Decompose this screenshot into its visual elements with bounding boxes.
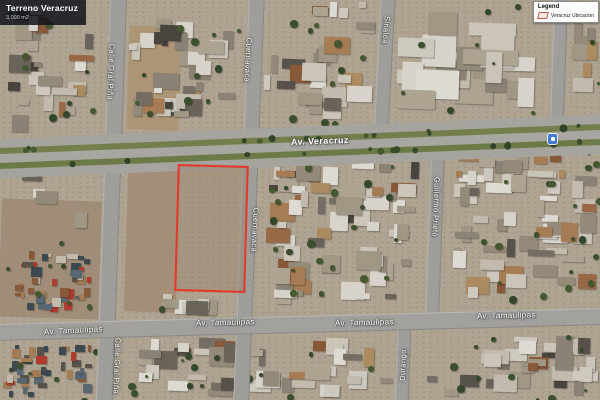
tree (495, 243, 502, 250)
building (484, 353, 501, 366)
building (38, 383, 47, 389)
building (87, 277, 92, 283)
tree (214, 355, 220, 361)
building (313, 6, 328, 15)
tree (593, 161, 600, 168)
building (506, 274, 526, 289)
tree (534, 232, 539, 237)
tree (185, 353, 192, 360)
tree (540, 293, 547, 300)
median-tree (302, 151, 307, 156)
building (31, 267, 42, 277)
tree (273, 247, 278, 252)
building (470, 188, 479, 197)
building (61, 362, 65, 371)
median-tree (364, 134, 369, 139)
building (265, 228, 289, 244)
building (587, 28, 595, 40)
building (583, 63, 591, 77)
tree (159, 306, 166, 313)
tree (308, 28, 314, 34)
building (45, 370, 51, 376)
tree (585, 165, 591, 171)
tree (334, 40, 342, 48)
tree (508, 374, 514, 380)
page-title: Terreno Veracruz (6, 3, 78, 13)
building (29, 347, 35, 357)
tree (485, 9, 491, 15)
tree (360, 55, 366, 61)
building (78, 379, 86, 383)
building (317, 197, 324, 215)
building (337, 75, 350, 83)
building (60, 288, 70, 297)
transit-stop-icon[interactable] (548, 134, 557, 144)
tree (48, 264, 52, 268)
building (18, 99, 30, 105)
building (456, 171, 462, 177)
legend-item-label: Veracruz Ubicacion (551, 13, 594, 19)
building (577, 338, 590, 355)
tree (509, 296, 517, 304)
building (139, 350, 161, 359)
building (36, 356, 47, 364)
buildings-layer (0, 0, 600, 400)
tree (481, 239, 487, 245)
building (486, 379, 493, 388)
tree (269, 187, 275, 193)
building (274, 268, 290, 285)
building (503, 160, 522, 172)
building (528, 362, 539, 370)
building (297, 93, 321, 105)
building (34, 62, 42, 68)
building (52, 87, 78, 95)
tree (531, 111, 535, 115)
building (84, 34, 92, 49)
building (468, 287, 478, 298)
tree (307, 240, 314, 247)
tree (368, 366, 374, 372)
legend-item[interactable]: Veracruz Ubicacion (538, 12, 594, 19)
building (356, 22, 374, 30)
building (455, 231, 479, 238)
tree (237, 29, 241, 33)
building (11, 115, 28, 132)
tree (90, 108, 97, 115)
median-tree (124, 157, 131, 164)
tree (548, 395, 556, 400)
building (289, 372, 306, 379)
building (528, 249, 554, 255)
tree (287, 394, 294, 400)
tree (476, 376, 481, 381)
building (69, 55, 94, 62)
building (480, 259, 504, 270)
tree (187, 383, 192, 388)
tree (491, 337, 496, 342)
building (562, 256, 585, 262)
building (42, 254, 48, 261)
building (460, 187, 469, 206)
median-tree (368, 147, 373, 152)
building (83, 384, 92, 393)
tree (215, 65, 222, 72)
tree (142, 73, 146, 77)
tree (184, 97, 192, 105)
tree (351, 225, 356, 230)
building (292, 379, 315, 388)
building (504, 212, 516, 227)
building (479, 158, 495, 168)
building (188, 375, 206, 381)
tree (474, 345, 478, 349)
median-tree (31, 147, 37, 153)
building (72, 360, 81, 367)
building (277, 222, 287, 229)
tree (177, 25, 184, 32)
building (208, 389, 232, 396)
tree (319, 291, 325, 297)
tree (565, 285, 572, 292)
building (67, 370, 73, 379)
building (385, 294, 396, 300)
tree (593, 254, 599, 260)
building (380, 378, 392, 384)
tree (290, 20, 298, 28)
satellite-map[interactable]: Av. Veracruz Av. Tamaulipas Av. Tamaulip… (0, 0, 600, 400)
median-tree (412, 147, 418, 153)
building (453, 251, 467, 268)
median-tree (23, 148, 29, 154)
median-tree (371, 133, 377, 139)
building (301, 191, 308, 207)
street-label-av-tamaulipas: Av. Tamaulipas (335, 317, 394, 328)
building (469, 22, 516, 37)
building (174, 111, 190, 118)
building (6, 375, 12, 383)
building (427, 376, 437, 382)
tree (457, 385, 465, 393)
building (469, 196, 477, 204)
building (305, 366, 330, 381)
building (335, 197, 362, 216)
property-boundary[interactable] (174, 164, 249, 293)
tree (200, 384, 203, 387)
tree (450, 363, 458, 371)
tree (316, 258, 323, 265)
building (31, 370, 42, 377)
tree (391, 165, 395, 169)
street-label-av-tamaulipas: Av. Tamaulipas (196, 317, 255, 328)
building (263, 371, 280, 387)
tree (284, 186, 287, 189)
tree (386, 194, 393, 201)
building (12, 349, 20, 359)
building (32, 278, 38, 285)
building (573, 382, 582, 395)
parcel-outline-icon (537, 12, 549, 19)
building (38, 75, 62, 85)
tree (181, 359, 185, 363)
building (9, 390, 14, 397)
tree (59, 241, 64, 246)
building (77, 370, 82, 373)
building (398, 37, 434, 57)
building (177, 343, 188, 352)
building (87, 345, 90, 352)
building (572, 44, 588, 60)
tree (67, 301, 71, 305)
tree (6, 267, 10, 271)
tree (590, 40, 595, 45)
tree (573, 204, 577, 208)
tree (364, 180, 372, 188)
tree (191, 38, 199, 46)
building (518, 340, 535, 354)
building (364, 348, 375, 367)
building (396, 206, 414, 212)
building (21, 292, 25, 298)
building (485, 182, 511, 193)
map-title-overlay: Terreno Veracruz 3,000 m2 (0, 0, 86, 25)
building (85, 364, 92, 368)
building (324, 384, 340, 397)
tree (314, 23, 319, 28)
median-tree (244, 152, 250, 158)
tree (289, 115, 297, 123)
building (372, 187, 383, 197)
building (557, 277, 575, 285)
building (270, 55, 277, 73)
tree (28, 372, 32, 376)
building (528, 171, 553, 178)
building (560, 223, 578, 242)
tree (54, 377, 58, 381)
building (468, 171, 477, 185)
tree (597, 82, 600, 85)
building (41, 367, 46, 375)
building (559, 170, 565, 178)
building (43, 304, 52, 311)
building (56, 256, 66, 263)
tree (131, 390, 138, 397)
building (75, 345, 85, 352)
building (485, 52, 503, 84)
building (59, 347, 66, 355)
building (129, 43, 138, 49)
tree (447, 107, 455, 115)
building (511, 175, 527, 192)
tree (475, 43, 479, 47)
building (555, 352, 573, 371)
building (338, 7, 347, 18)
building (572, 181, 583, 199)
building (67, 254, 78, 259)
legend: Legend Veracruz Ubicacion (533, 1, 599, 23)
street-label-durango: Durango (398, 349, 408, 381)
tree (212, 33, 216, 37)
tree (85, 70, 89, 74)
building (313, 341, 326, 352)
building (165, 102, 173, 109)
building (582, 204, 596, 213)
building (52, 298, 62, 307)
tree (596, 198, 600, 205)
building (44, 93, 54, 110)
building (517, 78, 534, 107)
tree (147, 111, 153, 117)
building (75, 212, 88, 228)
street-label-av-tamaulipas: Av. Tamaulipas (477, 310, 536, 321)
tree (360, 205, 365, 210)
building (217, 93, 234, 100)
building (367, 221, 380, 231)
building (276, 170, 295, 177)
building (52, 279, 57, 286)
median-tree (490, 143, 496, 149)
building (185, 300, 208, 314)
building (311, 183, 331, 194)
building (36, 191, 57, 204)
tree (87, 304, 92, 309)
building (401, 259, 411, 266)
building (196, 82, 203, 91)
tree (394, 238, 398, 242)
building (379, 164, 392, 173)
tree (330, 265, 335, 270)
building (573, 78, 593, 92)
building (29, 251, 34, 260)
tree (35, 291, 41, 297)
tree (63, 111, 70, 118)
tree (384, 276, 389, 281)
building (347, 375, 361, 383)
building (78, 256, 84, 260)
legend-title: Legend (538, 4, 594, 10)
median-tree (70, 161, 76, 167)
tree (338, 67, 345, 74)
building (356, 250, 382, 270)
tree (290, 290, 296, 296)
tree (569, 270, 573, 274)
building (580, 214, 596, 233)
building (84, 259, 90, 264)
tree (309, 352, 314, 357)
building (506, 239, 515, 257)
building (21, 358, 32, 362)
building (15, 285, 23, 291)
building (72, 269, 83, 277)
building (537, 200, 544, 217)
building (8, 82, 20, 91)
building (152, 72, 178, 89)
tree (135, 101, 139, 105)
building (533, 264, 557, 277)
building (533, 156, 546, 164)
building (28, 288, 34, 294)
building (301, 62, 326, 81)
building (359, 2, 366, 9)
tree (270, 217, 278, 225)
building (397, 224, 408, 241)
building (277, 81, 295, 89)
median-tree (242, 138, 247, 143)
tree (579, 236, 587, 244)
building (330, 2, 338, 18)
building (428, 11, 458, 35)
tree (49, 114, 57, 122)
tree (584, 389, 587, 392)
building (398, 183, 416, 196)
building (347, 86, 373, 103)
building (84, 288, 90, 298)
tree (515, 4, 521, 10)
building (154, 88, 162, 94)
tree (9, 368, 13, 372)
building (17, 378, 27, 383)
building (198, 41, 224, 55)
building (355, 292, 371, 299)
median-tree (257, 138, 263, 144)
median-tree (268, 135, 275, 142)
tree (330, 81, 335, 86)
building (44, 346, 48, 352)
median-tree (577, 139, 582, 144)
tree (22, 53, 29, 60)
building (410, 162, 418, 179)
building (23, 387, 27, 394)
building (264, 75, 271, 90)
tree (566, 335, 571, 340)
building (472, 216, 487, 224)
building (343, 354, 362, 361)
tree (331, 189, 339, 197)
building (550, 155, 561, 162)
building (27, 40, 38, 50)
building (27, 303, 34, 311)
tree (360, 275, 368, 283)
building (168, 380, 188, 391)
tree (61, 264, 66, 269)
building (323, 98, 341, 111)
building (580, 366, 592, 381)
tree (206, 99, 211, 104)
median-tree (576, 124, 580, 128)
tree (191, 364, 198, 371)
parcel-area-label: 3,000 m2 (6, 15, 78, 21)
building (28, 392, 34, 397)
